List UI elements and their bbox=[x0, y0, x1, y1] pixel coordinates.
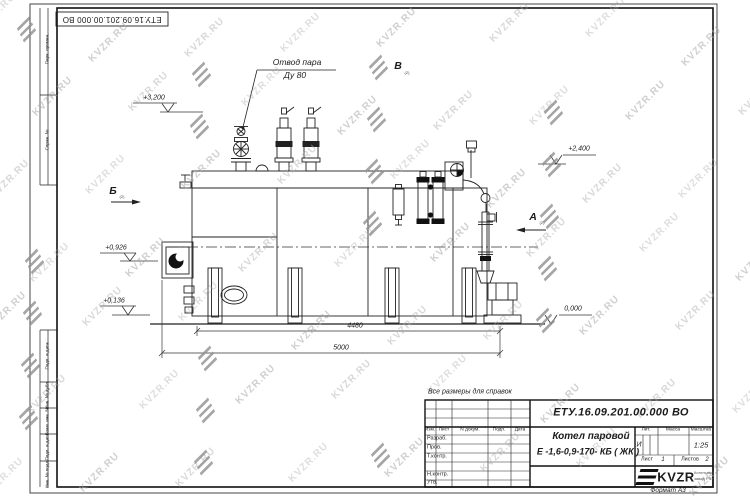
downcomer-and-pump bbox=[477, 212, 521, 323]
water-level-gauges bbox=[393, 172, 445, 226]
view-label-a: А bbox=[529, 212, 537, 223]
product-code: Е -1,6-0,9-170- КБ ( ЖК ) bbox=[537, 448, 639, 457]
margin-label-vzam-inv: Взам. инв. № bbox=[46, 407, 51, 435]
masshtab-header: Масштаб bbox=[691, 429, 712, 434]
col-data: Дата bbox=[515, 429, 526, 434]
sheet-value: 1 bbox=[661, 457, 664, 463]
margin-label-inv-dubl: Инв. № дубл. bbox=[46, 381, 51, 409]
view-note-v: (2) bbox=[405, 71, 410, 75]
titleblock-doc-number: ЕТУ.16.09.201.00.000 ВО bbox=[553, 408, 689, 419]
dimension-lines bbox=[159, 280, 503, 358]
elevation-0926: +0,926 bbox=[105, 245, 127, 252]
safety-valve-left bbox=[275, 107, 294, 171]
steam-valve bbox=[231, 127, 251, 172]
col-ndocum: N докум. bbox=[460, 429, 479, 434]
margin-label-inv-podl: Инв. № подл. bbox=[46, 460, 51, 489]
org-line2: завод РЭУ bbox=[694, 477, 714, 481]
row-tkontr: Т.контр. bbox=[427, 454, 447, 460]
elevation-marks bbox=[100, 103, 596, 324]
scale-value: 1:25 bbox=[694, 441, 709, 449]
boiler-shell bbox=[168, 162, 538, 316]
massa-header: Масса bbox=[666, 429, 680, 434]
row-prov: Пров. bbox=[427, 445, 442, 451]
safety-valve-right bbox=[302, 107, 321, 171]
row-razrab: Разраб. bbox=[427, 436, 447, 442]
row-utv: Утв. bbox=[427, 480, 437, 486]
margin-label-podp-data-2: Подп. и дата bbox=[46, 433, 51, 460]
dome-fitting bbox=[256, 165, 268, 171]
callout-steam-outlet: Отвод пара bbox=[273, 58, 322, 67]
elevation-2400: +2,400 bbox=[568, 146, 590, 153]
view-label-v: В bbox=[394, 61, 402, 72]
elevation-0000: 0,000 bbox=[564, 306, 582, 313]
dimension-4480: 4480 bbox=[347, 323, 363, 330]
lit-header: Лит. bbox=[642, 429, 651, 434]
col-list: Лист bbox=[439, 429, 449, 434]
col-izm: Изм. bbox=[425, 429, 435, 434]
support-legs bbox=[208, 268, 476, 323]
kvzr-logo-text: KVZR bbox=[657, 471, 694, 484]
margin-label-podp-data-1: Подп. и дата bbox=[46, 342, 51, 369]
dimension-5000: 5000 bbox=[333, 345, 349, 352]
margin-label-sprav-n: Справ. № bbox=[46, 130, 51, 151]
top-stamp-doc-number: ЕТУ.16.09.201.00.000 ВО bbox=[62, 15, 161, 23]
margin-label-perv-primen: Перв. примен. bbox=[46, 34, 51, 65]
product-title: Котел паровой bbox=[552, 432, 629, 442]
top-right-valve bbox=[451, 141, 491, 212]
blueprint-page: KVZR.RUKVZR.RUKVZR.RUKVZR.RUKVZR.RUKVZR.… bbox=[0, 0, 750, 500]
sheets-label: Листов bbox=[681, 457, 699, 463]
elevation-3200: +3,200 bbox=[143, 95, 165, 102]
reference-note: Все размеры для справок bbox=[428, 389, 512, 396]
manhole bbox=[221, 286, 247, 304]
format-label: Формат А3 bbox=[650, 488, 686, 495]
col-podp: Подп. bbox=[493, 429, 506, 434]
sheet-label: Лист bbox=[641, 457, 653, 463]
view-arrows bbox=[111, 200, 546, 233]
burner bbox=[162, 175, 194, 313]
view-note-a: (2) bbox=[540, 221, 545, 225]
org-line1: Котельный bbox=[694, 471, 714, 475]
outer-border bbox=[30, 4, 717, 493]
row-nkontr: Н.контр. bbox=[427, 472, 448, 478]
callout-du80: Ду 80 bbox=[284, 71, 306, 80]
elevation-0136: +0,136 bbox=[103, 298, 125, 305]
boiler-side-view bbox=[150, 107, 545, 324]
view-label-b: Б bbox=[109, 186, 116, 197]
view-note-b: (2) bbox=[120, 195, 125, 199]
lit-value: И bbox=[636, 442, 641, 449]
sheets-value: 2 bbox=[705, 457, 708, 463]
